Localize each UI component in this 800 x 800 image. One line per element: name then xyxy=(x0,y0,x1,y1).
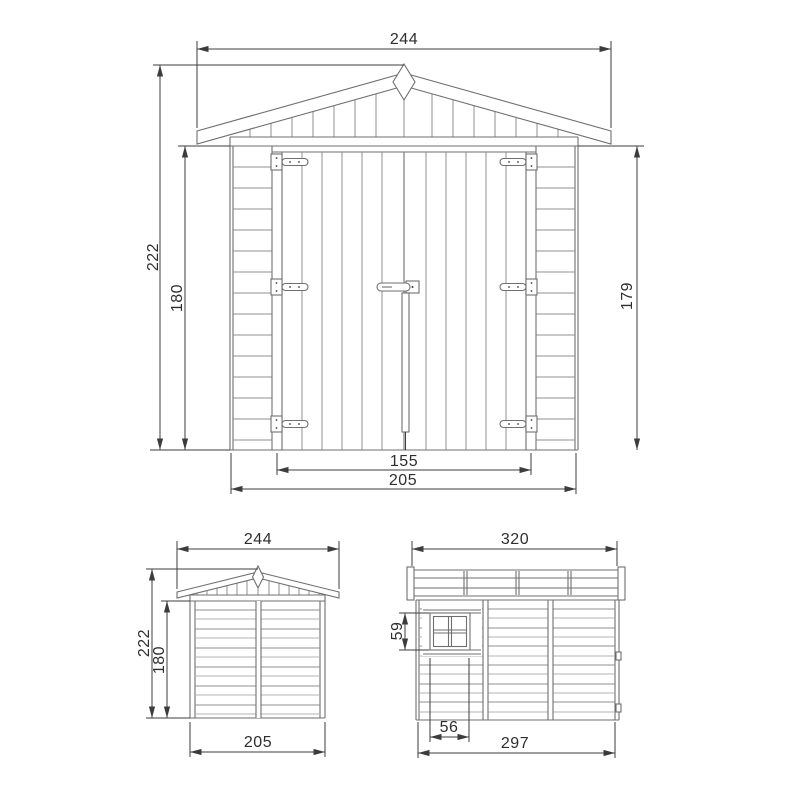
dim-label: 179 xyxy=(619,282,636,310)
dim-front-wall-height-left: 180 xyxy=(169,146,230,450)
side-hinge-mark-bottom xyxy=(616,704,621,712)
dim-label: 320 xyxy=(501,531,529,548)
dim-rear-body-width: 205 xyxy=(190,722,325,757)
rear-elevation-view: 244 222 180 205 xyxy=(136,531,339,757)
side-window xyxy=(422,608,482,656)
side-hinge-mark-top xyxy=(616,652,621,660)
dim-label: 244 xyxy=(390,31,418,48)
dim-label: 180 xyxy=(169,284,186,312)
gable-finial xyxy=(393,64,415,100)
dim-front-wall-height-right: 179 xyxy=(578,146,644,450)
dim-label: 222 xyxy=(145,243,162,271)
top-beam xyxy=(230,137,578,146)
front-dimensions: 244 222 180 179 155 xyxy=(145,31,644,494)
rear-wall xyxy=(190,595,325,718)
side-elevation-view: 320 59 56 297 xyxy=(389,531,625,758)
door-latch xyxy=(377,281,419,293)
dim-window-width: 56 xyxy=(430,658,469,742)
double-doors xyxy=(271,146,537,450)
technical-drawing-page: 244 222 180 179 155 xyxy=(0,0,800,800)
side-roof-edge xyxy=(407,567,625,600)
door-rod xyxy=(402,293,409,450)
dim-label: 155 xyxy=(390,453,418,470)
shed-dimension-diagram: 244 222 180 179 155 xyxy=(0,0,800,800)
dim-label: 56 xyxy=(440,719,459,736)
front-elevation-view: 244 222 180 179 155 xyxy=(145,31,644,494)
dim-label: 297 xyxy=(501,735,529,752)
dim-label: 59 xyxy=(389,622,406,641)
dim-rear-wall-height: 180 xyxy=(151,601,190,718)
dim-side-roof-depth: 320 xyxy=(412,531,617,566)
dim-label: 205 xyxy=(244,734,272,751)
dim-label: 180 xyxy=(151,646,168,674)
dim-label: 205 xyxy=(389,472,417,489)
rear-dimensions: 244 222 180 205 xyxy=(136,531,339,757)
dim-label: 244 xyxy=(244,531,272,548)
